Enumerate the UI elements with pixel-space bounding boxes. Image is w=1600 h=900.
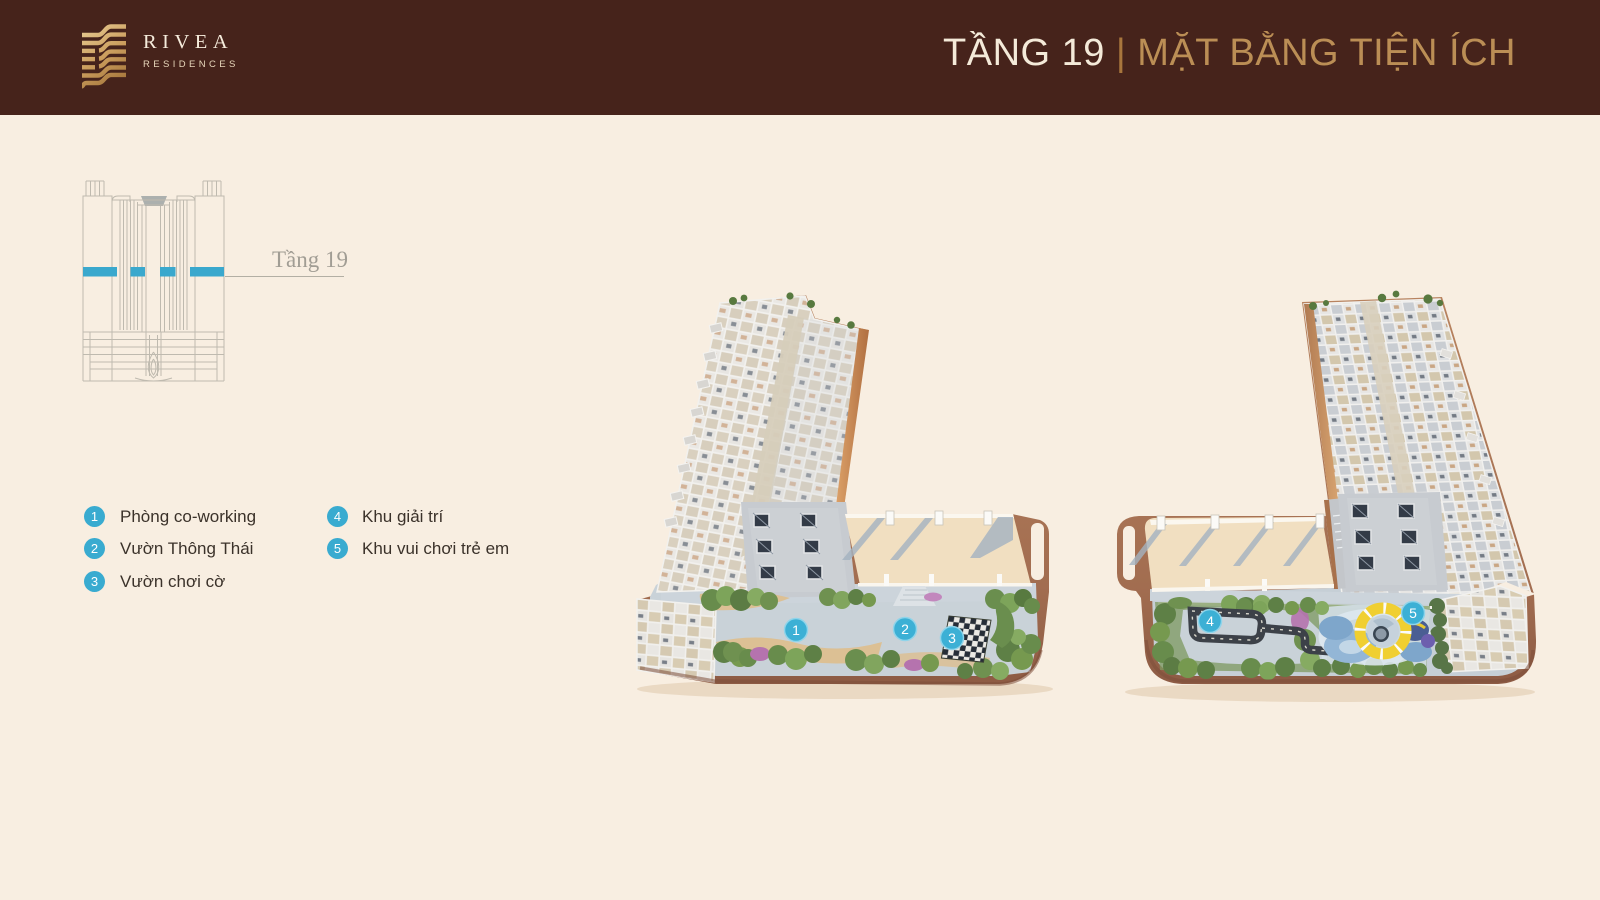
svg-text:5: 5 — [1409, 605, 1417, 621]
svg-text:1: 1 — [792, 622, 800, 638]
svg-text:3: 3 — [948, 630, 956, 646]
svg-text:2: 2 — [901, 621, 909, 637]
svg-text:4: 4 — [1206, 613, 1214, 629]
